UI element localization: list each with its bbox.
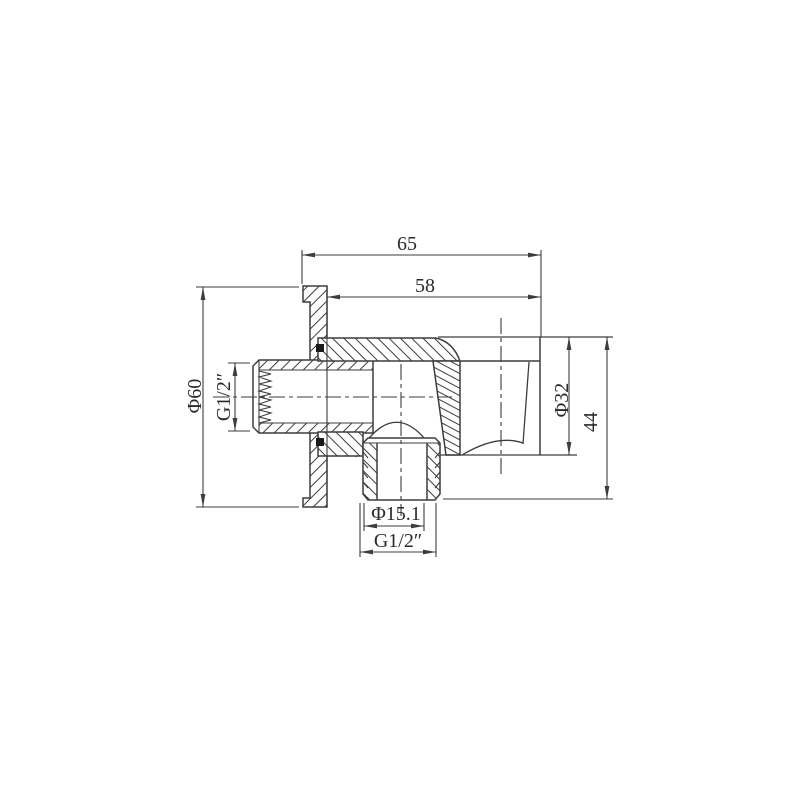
dimension-outlet-bore: Φ15.1 <box>364 503 424 531</box>
dim-label-inlet-g12: G1/2″ <box>213 373 235 421</box>
dim-label-d151: Φ15.1 <box>371 503 421 525</box>
seal-square-bottom <box>316 438 324 446</box>
shower-holder-socket <box>438 337 613 455</box>
socket-bottom-curve <box>462 440 523 455</box>
dim-label-outlet-g12: G1/2″ <box>374 530 422 552</box>
dim-label-58: 58 <box>415 275 435 297</box>
seal-square-top <box>316 344 324 352</box>
sectional-drawing-canvas: 65 58 Φ60 G1/2″ Φ32 44 Φ15 <box>0 0 800 800</box>
dim-label-d60: Φ60 <box>184 379 206 414</box>
dimension-body-width: 58 <box>327 275 541 299</box>
dim-label-44: 44 <box>580 412 602 432</box>
dim-label-d32: Φ32 <box>551 383 573 418</box>
dim-label-65: 65 <box>397 233 417 255</box>
dimension-holder-diameter: Φ32 <box>551 337 573 455</box>
technical-drawing-page: 65 58 Φ60 G1/2″ Φ32 44 Φ15 <box>0 0 800 800</box>
